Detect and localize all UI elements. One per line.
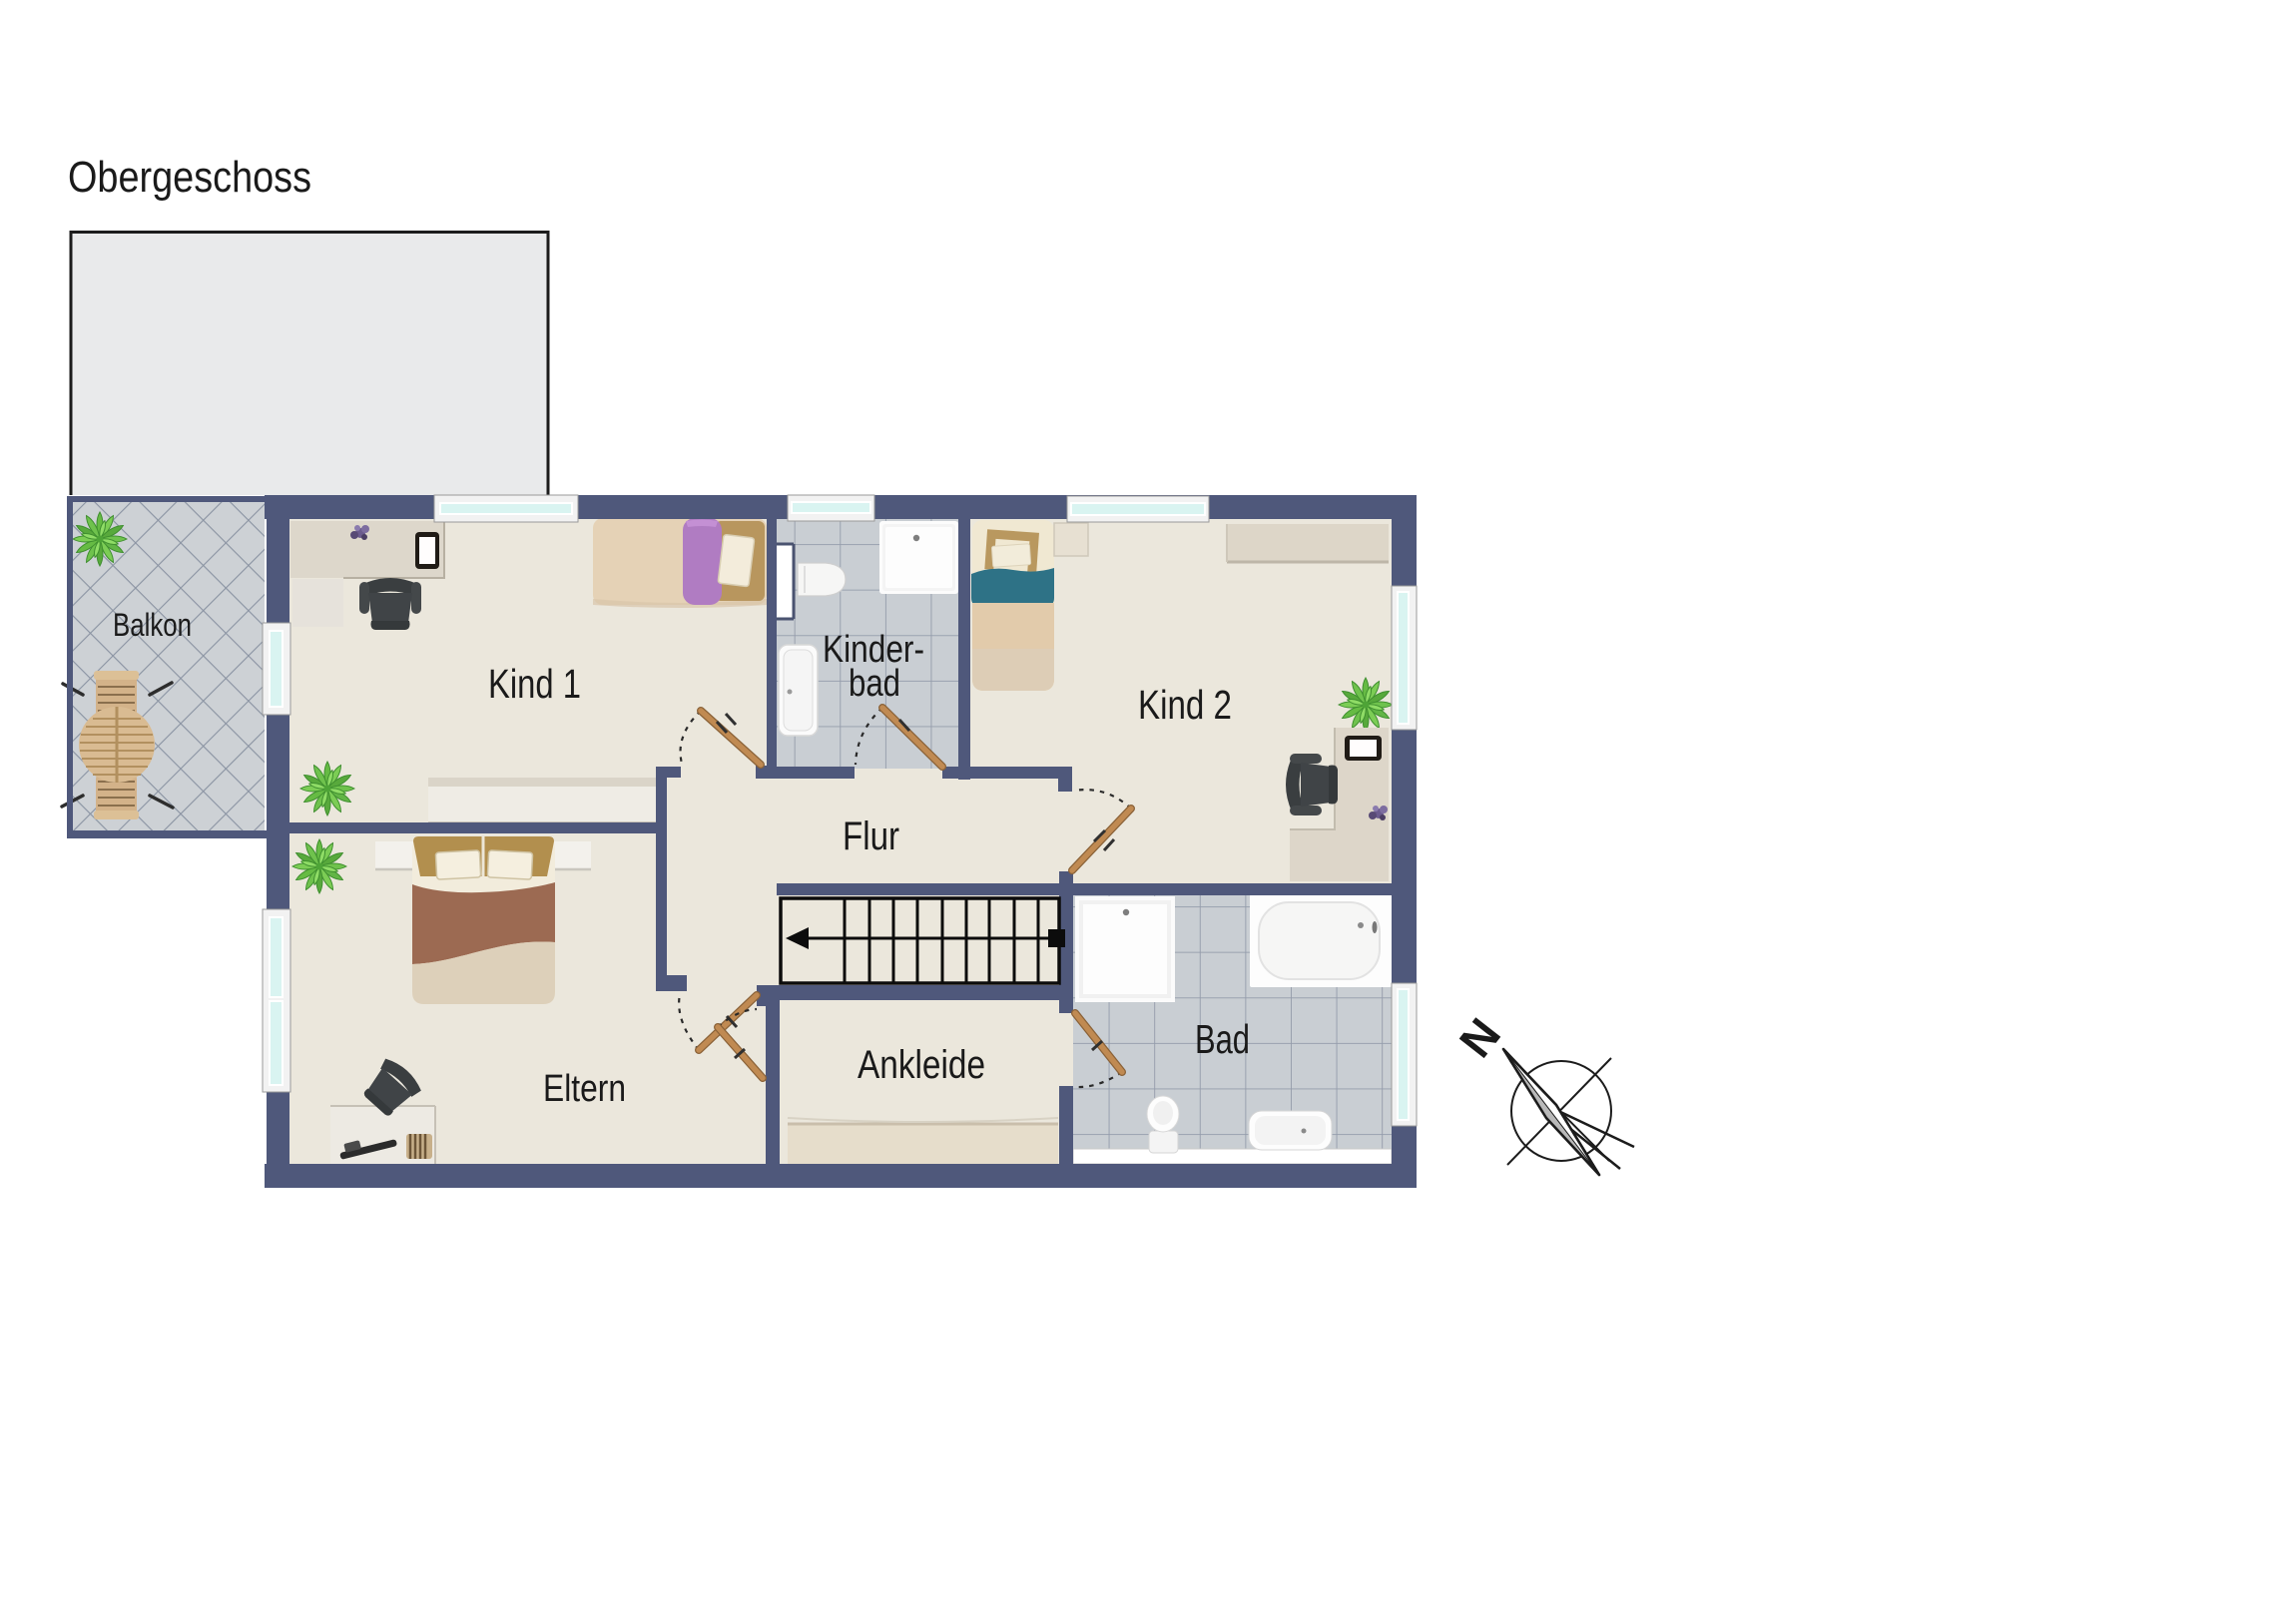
svg-text:Flur: Flur [843,814,899,858]
svg-text:Ankleide: Ankleide [858,1043,985,1087]
svg-text:Balkon: Balkon [113,607,192,643]
svg-text:Bad: Bad [1195,1016,1250,1062]
svg-text:Kind 2: Kind 2 [1138,682,1232,728]
svg-text:Obergeschoss: Obergeschoss [68,153,311,202]
svg-text:Kind 1: Kind 1 [488,661,581,707]
svg-text:Eltern: Eltern [543,1068,626,1110]
svg-text:bad: bad [849,663,900,705]
